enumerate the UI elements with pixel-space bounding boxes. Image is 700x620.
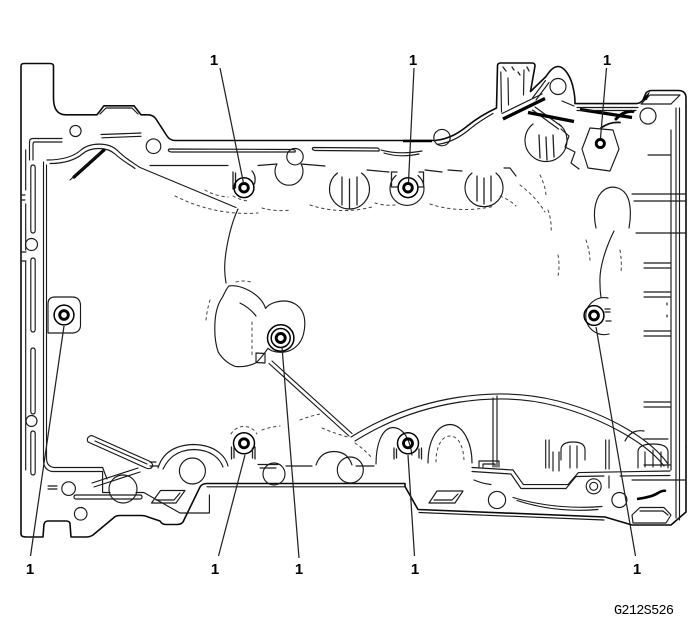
- svg-text:1: 1: [411, 561, 419, 578]
- svg-text:1: 1: [603, 52, 611, 69]
- svg-text:G212S526: G212S526: [614, 604, 674, 619]
- svg-text:1: 1: [295, 561, 303, 578]
- svg-text:1: 1: [409, 52, 417, 69]
- svg-text:1: 1: [633, 561, 641, 578]
- svg-text:1: 1: [210, 52, 218, 69]
- svg-text:1: 1: [211, 561, 219, 578]
- svg-text:1: 1: [26, 561, 34, 578]
